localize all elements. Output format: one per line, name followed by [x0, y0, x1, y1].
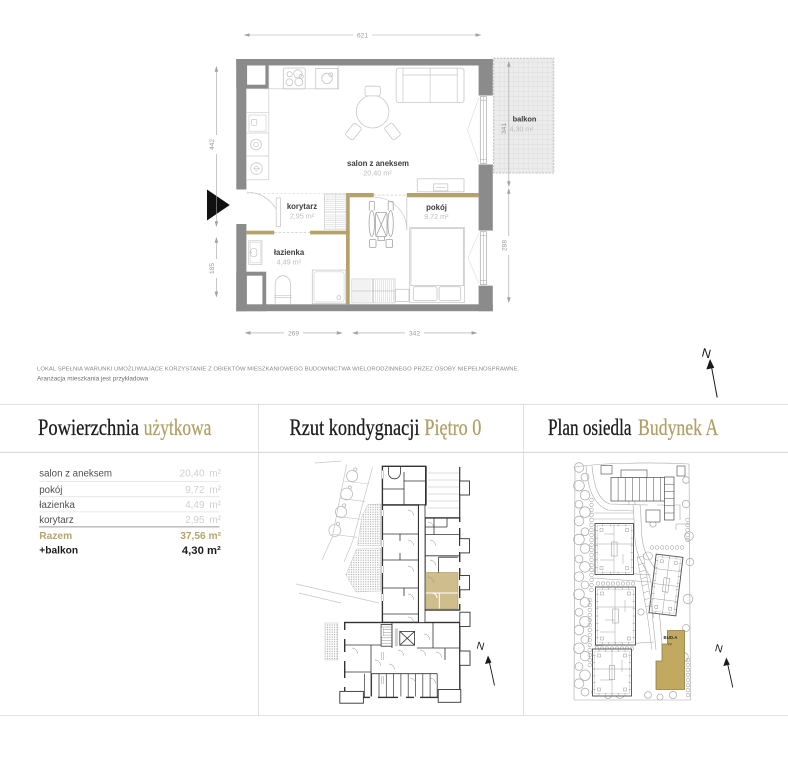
svg-text:4,49 m²: 4,49 m² — [277, 257, 302, 266]
svg-text:LOKAL SPEŁNIA WARUNKI UMOŻLIWI: LOKAL SPEŁNIA WARUNKI UMOŻLIWIAJĄCE KORZ… — [37, 366, 520, 373]
svg-text:2,95 m²: 2,95 m² — [185, 515, 222, 526]
svg-text:37,56 m²: 37,56 m² — [180, 531, 221, 542]
svg-text:korytarz: korytarz — [39, 515, 74, 526]
svg-text:341: 341 — [501, 123, 508, 134]
svg-text:Aranżacja mieszkania jest prz: Aranżacja mieszkania jest przykładowa — [37, 376, 149, 383]
svg-text:Rzut kondygnacji: Rzut kondygnacji — [290, 415, 420, 440]
svg-text:Powierzchnia: Powierzchnia — [38, 415, 139, 440]
svg-text:4,49 m²: 4,49 m² — [185, 500, 222, 511]
svg-text:2,95 m²: 2,95 m² — [290, 211, 315, 220]
svg-text:9,72 m²: 9,72 m² — [424, 212, 449, 221]
svg-text:Razem: Razem — [39, 531, 72, 542]
svg-text:4,30 m²: 4,30 m² — [182, 545, 221, 557]
svg-text:salon z aneksem: salon z aneksem — [347, 159, 409, 168]
svg-text:621: 621 — [357, 32, 368, 39]
svg-text:BUD.A: BUD.A — [664, 635, 679, 640]
svg-text:4,30 m²: 4,30 m² — [510, 127, 534, 134]
svg-text:salon z aneksem: salon z aneksem — [39, 468, 112, 479]
svg-text:użytkowa: użytkowa — [144, 415, 212, 440]
svg-text:N: N — [700, 346, 712, 362]
svg-text:N: N — [714, 642, 724, 655]
svg-text:N: N — [475, 640, 485, 653]
svg-text:288: 288 — [501, 240, 508, 251]
svg-text:20,40 m²: 20,40 m² — [180, 468, 222, 479]
svg-text:9,72 m²: 9,72 m² — [185, 485, 222, 496]
svg-text:+balkon: +balkon — [39, 546, 78, 557]
svg-text:Plan osiedla: Plan osiedla — [548, 415, 632, 440]
svg-text:Budynek A: Budynek A — [638, 415, 719, 440]
svg-text:pokój: pokój — [39, 485, 62, 496]
svg-text:pokój: pokój — [426, 203, 447, 212]
svg-text:łazienka: łazienka — [274, 248, 305, 257]
svg-text:442: 442 — [209, 139, 216, 150]
svg-text:IV: IV — [668, 642, 672, 647]
svg-text:269: 269 — [288, 330, 299, 337]
svg-text:185: 185 — [209, 263, 216, 274]
svg-text:20,40 m²: 20,40 m² — [363, 168, 392, 177]
svg-text:balkon: balkon — [513, 114, 537, 123]
svg-text:342: 342 — [409, 330, 420, 337]
svg-text:łazienka: łazienka — [39, 500, 75, 511]
svg-text:Piętro 0: Piętro 0 — [424, 415, 481, 440]
svg-text:korytarz: korytarz — [287, 202, 317, 211]
